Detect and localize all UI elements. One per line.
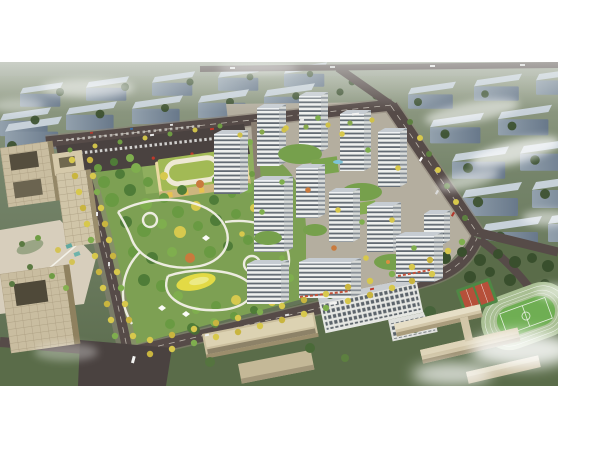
residential-tower <box>329 188 360 242</box>
office-tower-3 <box>0 264 80 353</box>
residential-tower <box>378 128 407 187</box>
residential-slab <box>247 260 289 304</box>
rendering-frame <box>0 62 558 386</box>
residential-tower <box>340 110 371 171</box>
residential-tower <box>367 202 401 252</box>
podium-pool <box>333 160 343 164</box>
residential-tower <box>214 130 248 194</box>
office-tower-1 <box>0 141 61 208</box>
courtyard-garden <box>254 231 282 245</box>
courtyard-garden <box>303 224 327 236</box>
aerial-rendering <box>0 62 558 386</box>
residential-slab-retail <box>299 258 361 298</box>
rendering-page <box>0 0 600 450</box>
